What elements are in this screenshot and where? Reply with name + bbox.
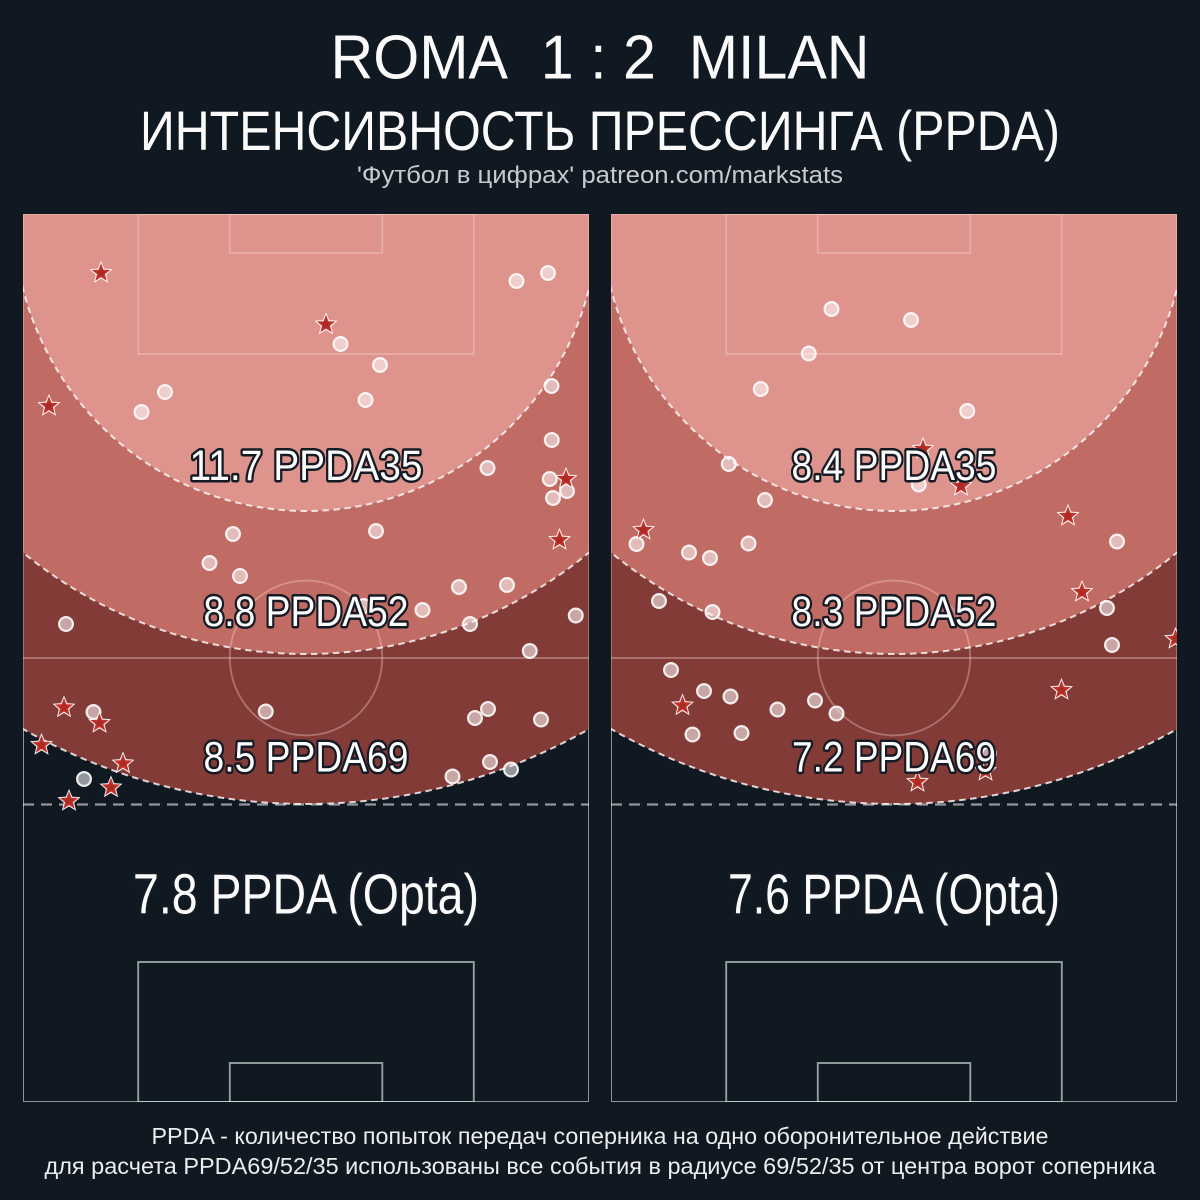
svg-text:ИНТЕНСИВНОСТЬ ПРЕССИНГА (PPDA): ИНТЕНСИВНОСТЬ ПРЕССИНГА (PPDA) [140,100,1060,162]
svg-text:11.7 PPDA35: 11.7 PPDA35 [190,442,423,490]
svg-text:для расчета PPDA69/52/35 испол: для расчета PPDA69/52/35 использованы вс… [45,1153,1156,1179]
svg-text:ROMA 1 : 2 MILAN: ROMA 1 : 2 MILAN [331,24,870,93]
svg-text:7.2 PPDA69: 7.2 PPDA69 [792,734,996,782]
svg-text:8.3 PPDA52: 8.3 PPDA52 [792,588,997,636]
svg-text:'Футбол в цифрах' patreon.com/: 'Футбол в цифрах' patreon.com/markstats [357,162,843,189]
svg-text:7.6 PPDA (Opta): 7.6 PPDA (Opta) [728,863,1060,927]
svg-text:8.8 PPDA52: 8.8 PPDA52 [204,588,409,636]
svg-text:PPDA - количество попыток пере: PPDA - количество попыток передач соперн… [152,1123,1049,1149]
svg-text:8.4 PPDA35: 8.4 PPDA35 [792,442,997,490]
svg-text:7.8 PPDA (Opta): 7.8 PPDA (Opta) [133,863,479,927]
svg-text:8.5 PPDA69: 8.5 PPDA69 [204,734,409,782]
